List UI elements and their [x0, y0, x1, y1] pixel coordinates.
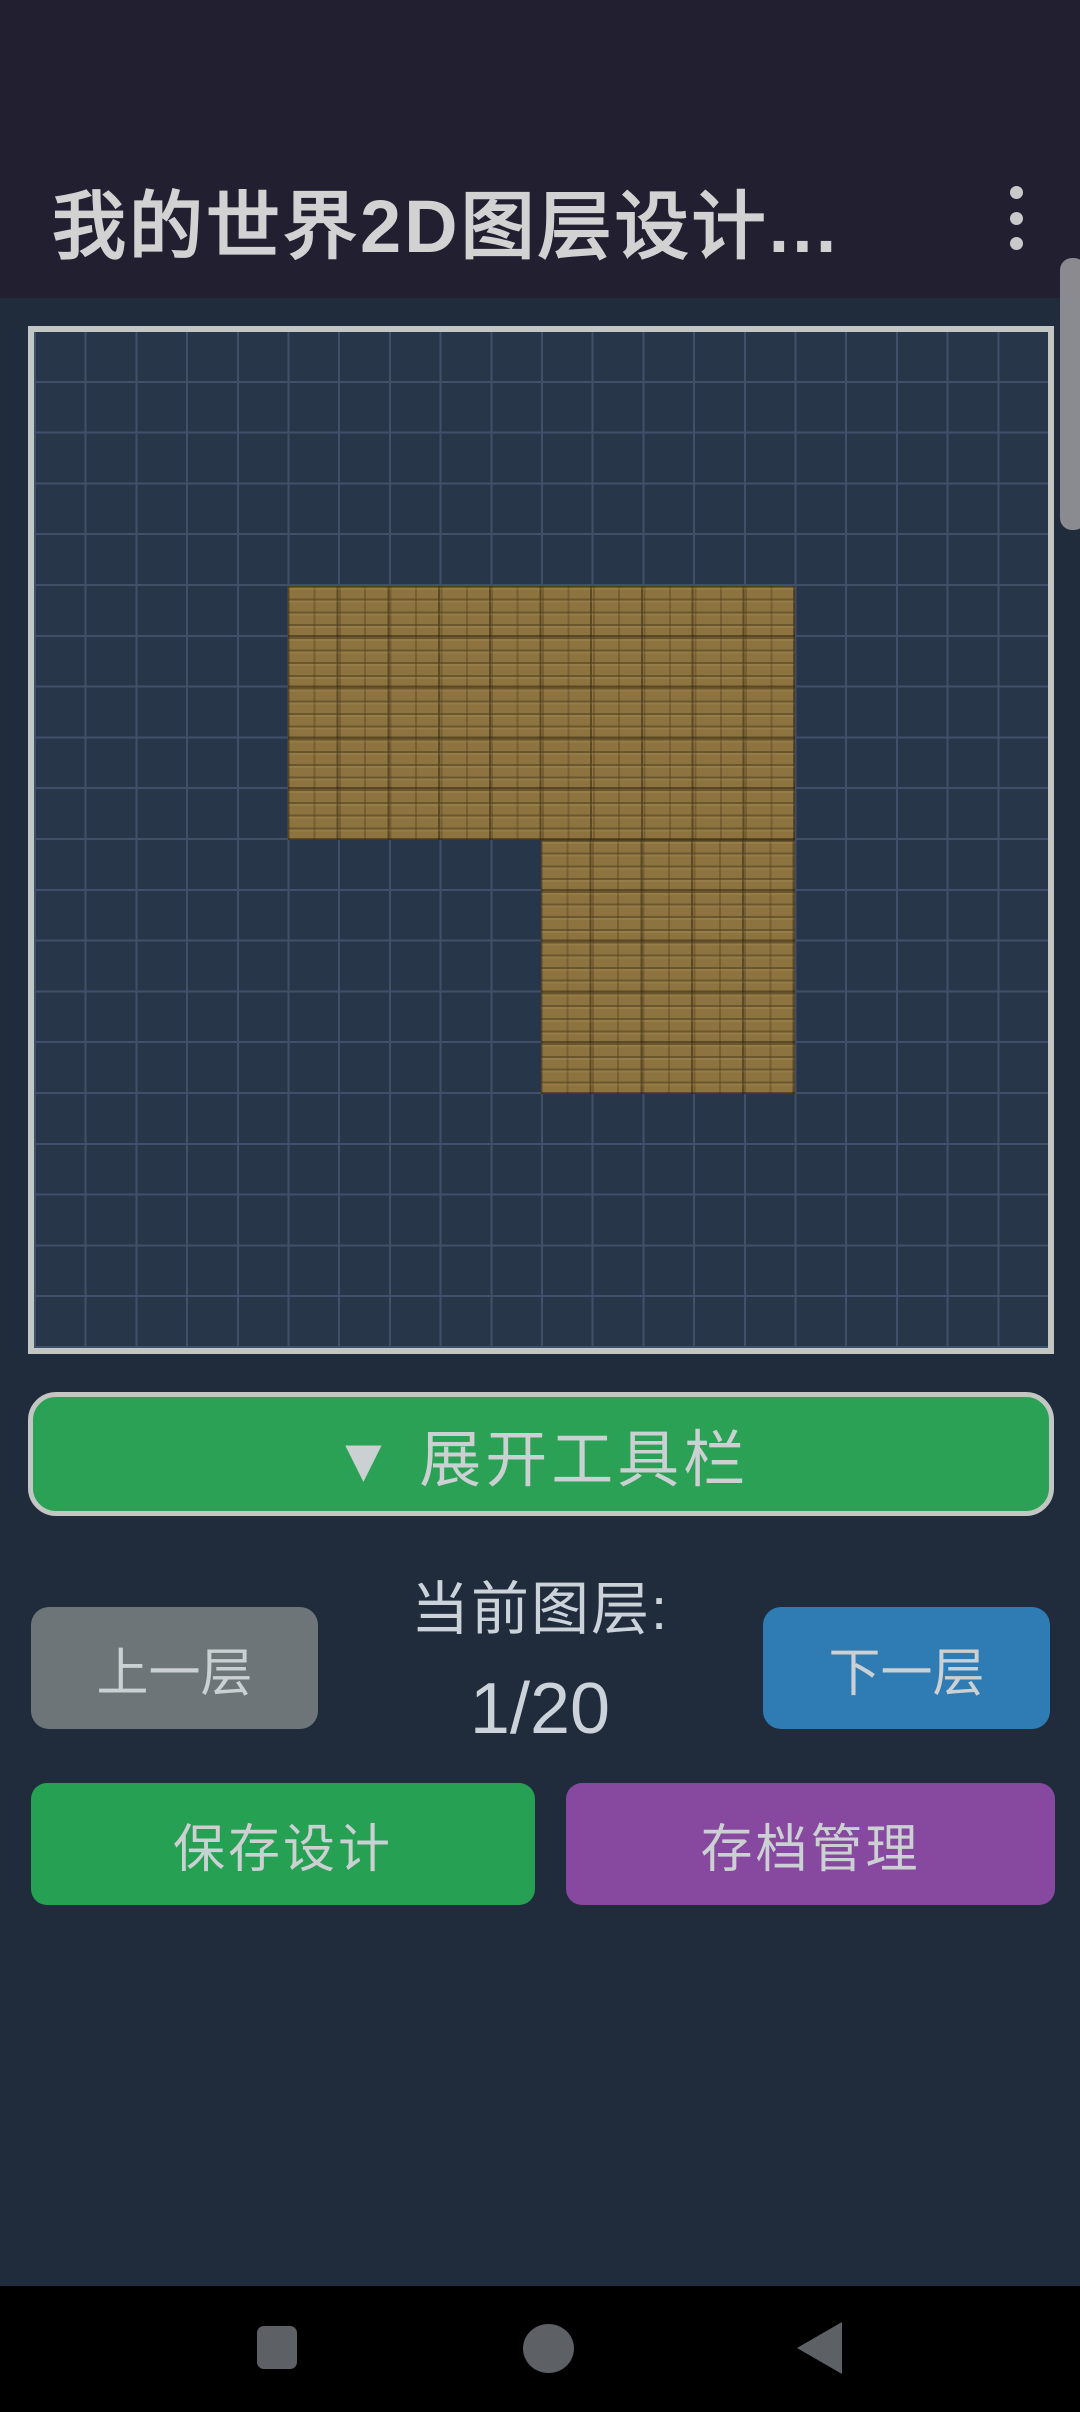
- archive-manager-button[interactable]: 存档管理: [566, 1783, 1055, 1905]
- placed-blocks-region[interactable]: [288, 586, 795, 840]
- design-canvas[interactable]: [28, 326, 1054, 1354]
- home-circle-icon[interactable]: [523, 2324, 574, 2373]
- current-layer-info: 当前图层: 1/20: [330, 1575, 750, 1745]
- app-title: 我的世界2D图层设计...: [52, 160, 952, 280]
- current-layer-value: 1/20: [470, 1673, 610, 1745]
- save-design-button[interactable]: 保存设计: [31, 1783, 535, 1905]
- overflow-menu-icon[interactable]: [996, 186, 1036, 250]
- scrollbar-thumb[interactable]: [1060, 258, 1080, 530]
- previous-layer-button[interactable]: 上一层: [31, 1607, 318, 1729]
- kebab-dot: [1010, 212, 1023, 225]
- design-grid[interactable]: [34, 332, 1048, 1348]
- app-screen: { "app": { "title": "我的世界2D图层设计...", "me…: [0, 0, 1080, 2412]
- back-triangle-icon[interactable]: [797, 2322, 842, 2374]
- next-layer-button[interactable]: 下一层: [763, 1607, 1050, 1729]
- header-bar: 我的世界2D图层设计...: [0, 0, 1080, 298]
- kebab-dot: [1010, 237, 1023, 250]
- current-layer-label: 当前图层:: [411, 1575, 669, 1645]
- android-nav-bar: [0, 2286, 1080, 2412]
- kebab-dot: [1010, 186, 1023, 199]
- recents-square-icon[interactable]: [257, 2326, 297, 2369]
- expand-toolbar-button[interactable]: ▼ 展开工具栏: [28, 1392, 1054, 1516]
- placed-blocks-region[interactable]: [541, 840, 795, 1094]
